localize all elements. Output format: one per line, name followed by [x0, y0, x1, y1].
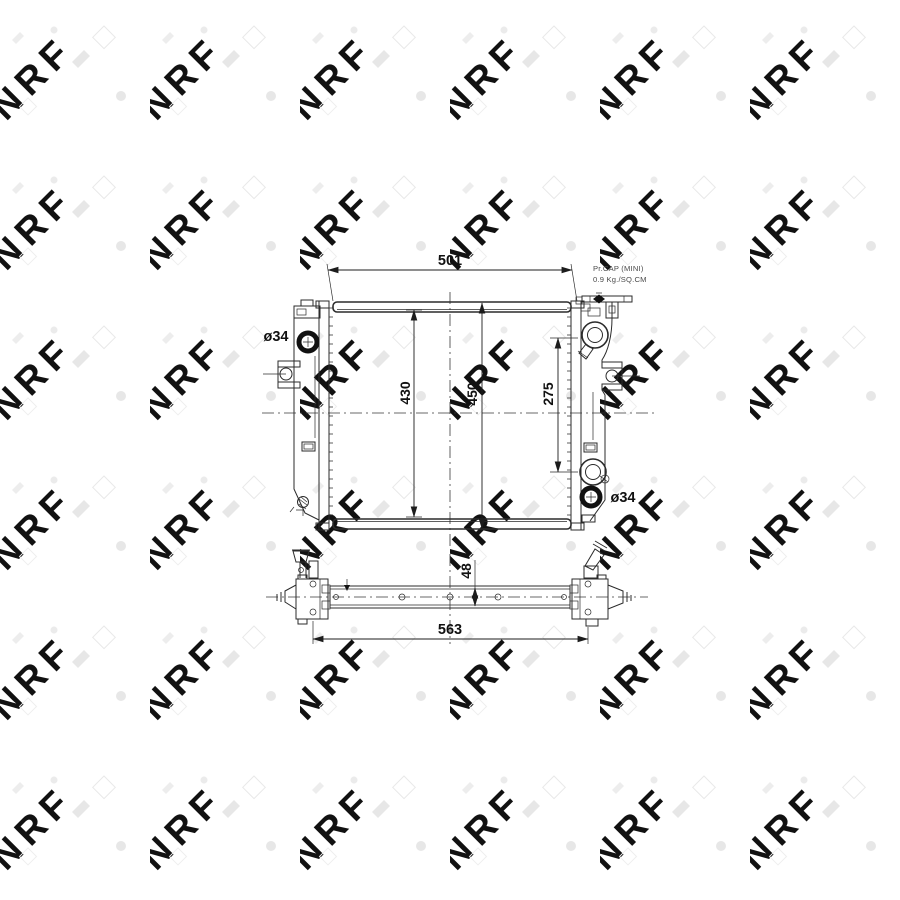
radiator-technical-drawing: NRF	[0, 0, 900, 900]
pressure-cap-note-line1: Pr.CAP (MINI)	[593, 264, 644, 273]
drawing-canvas: NRF	[0, 0, 900, 900]
dim-48-label: 48	[458, 563, 474, 579]
dim-450-label: 450	[464, 382, 480, 406]
pressure-cap-note-line2: 0.9 Kg./SQ.CM	[593, 275, 647, 284]
dim-563-label: 563	[438, 622, 462, 638]
dim-275-label: 275	[540, 382, 556, 406]
dim-501-label: 501	[438, 253, 462, 269]
dim-inlet-diameter-label: ø34	[264, 329, 289, 345]
dim-outlet-diameter-label: ø34	[611, 490, 636, 506]
dim-430-label: 430	[397, 381, 413, 405]
